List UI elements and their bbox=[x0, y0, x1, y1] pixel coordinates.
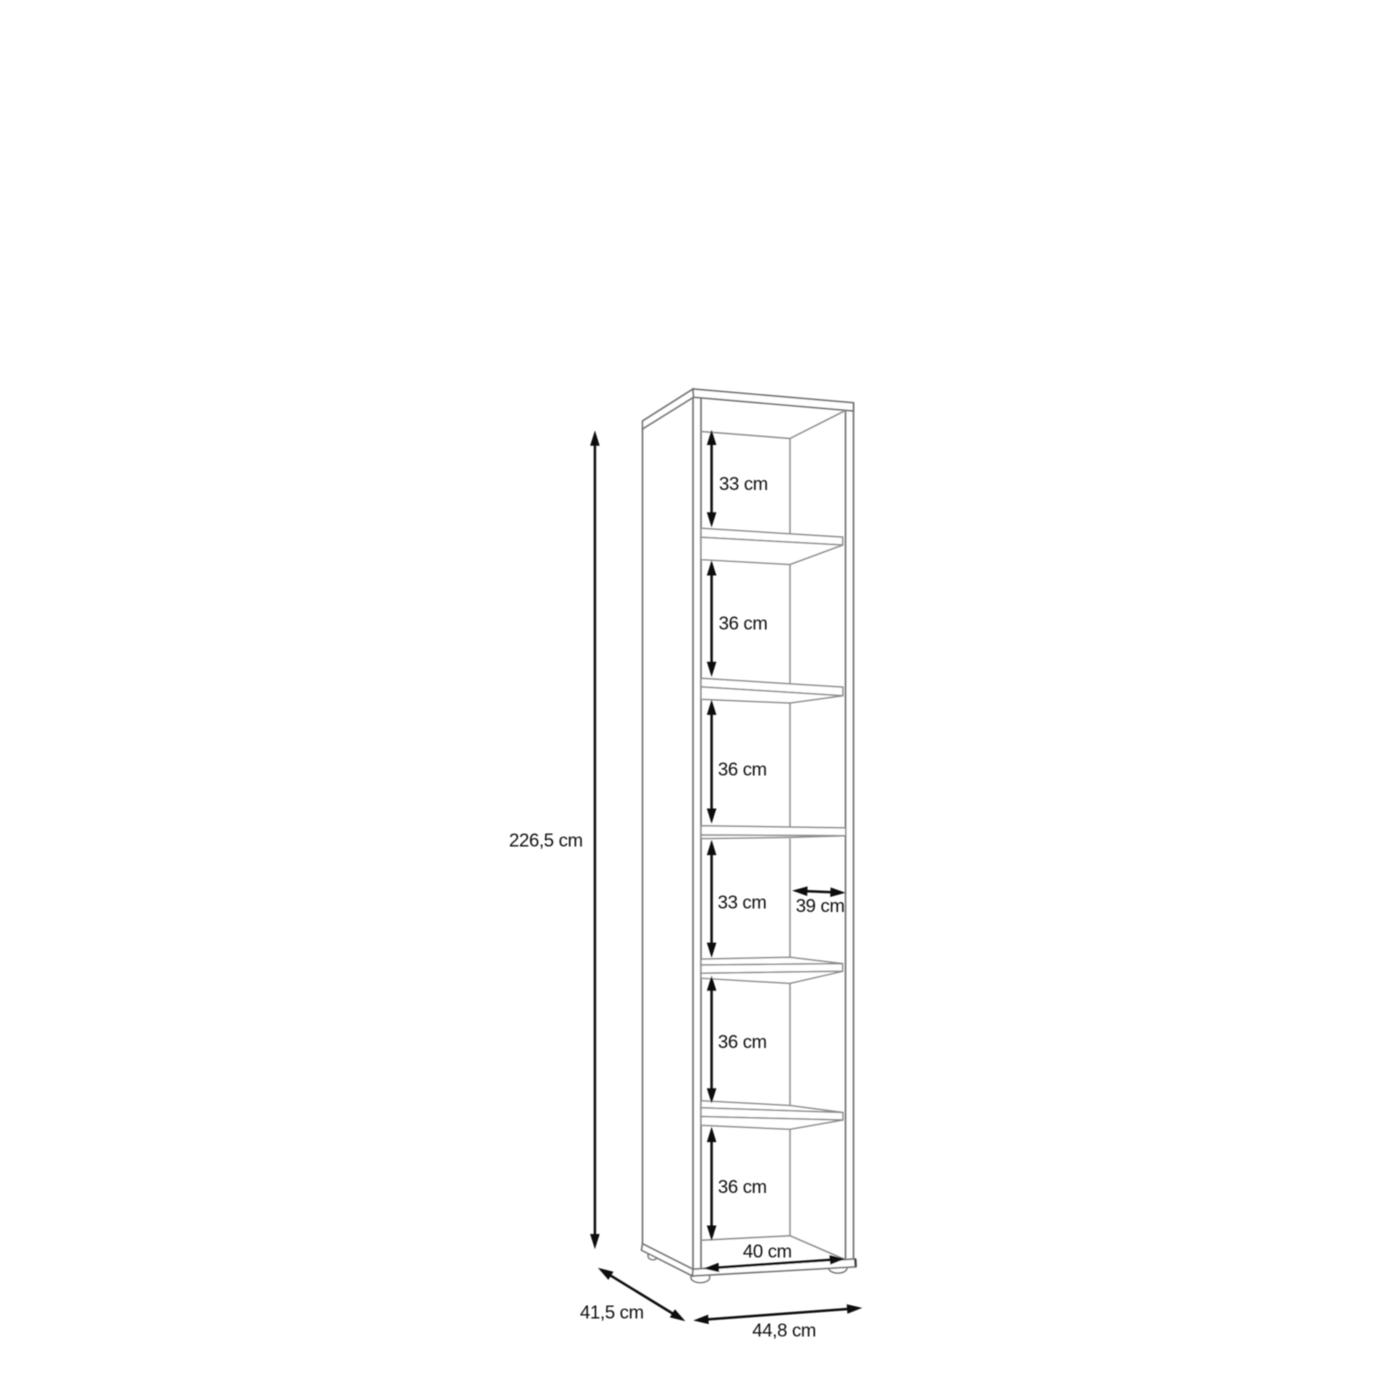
svg-text:40 cm: 40 cm bbox=[743, 1241, 792, 1262]
svg-text:33 cm: 33 cm bbox=[719, 473, 768, 494]
svg-text:36 cm: 36 cm bbox=[719, 613, 768, 634]
svg-text:36 cm: 36 cm bbox=[718, 1176, 767, 1197]
svg-text:36 cm: 36 cm bbox=[718, 759, 767, 780]
svg-text:41,5 cm: 41,5 cm bbox=[580, 1302, 644, 1323]
svg-text:44,8 cm: 44,8 cm bbox=[752, 1319, 816, 1340]
svg-text:39 cm: 39 cm bbox=[796, 895, 845, 916]
svg-text:36 cm: 36 cm bbox=[718, 1031, 767, 1052]
svg-text:226,5 cm: 226,5 cm bbox=[509, 830, 583, 851]
svg-text:33 cm: 33 cm bbox=[718, 891, 767, 912]
